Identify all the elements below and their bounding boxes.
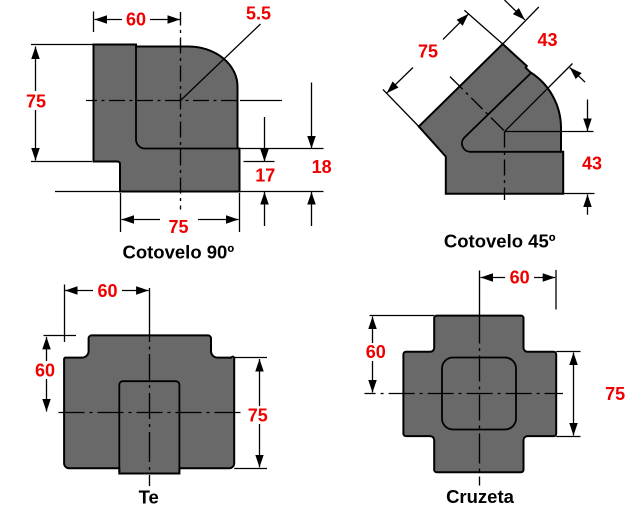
svg-text:Cruzeta: Cruzeta (446, 486, 515, 507)
svg-text:43: 43 (582, 154, 602, 174)
svg-text:60: 60 (126, 9, 146, 29)
svg-text:75: 75 (248, 405, 268, 425)
svg-text:60: 60 (97, 281, 117, 301)
svg-text:75: 75 (605, 384, 625, 404)
svg-text:18: 18 (312, 157, 332, 177)
svg-text:75: 75 (418, 42, 438, 62)
svg-text:43: 43 (537, 30, 557, 50)
svg-text:Te: Te (139, 487, 159, 508)
svg-text:17: 17 (255, 166, 275, 186)
svg-text:75: 75 (26, 91, 46, 111)
svg-text:75: 75 (168, 217, 188, 237)
svg-text:Cotovelo 90º: Cotovelo 90º (122, 242, 234, 263)
svg-text:60: 60 (366, 342, 386, 362)
svg-text:5.5: 5.5 (246, 4, 271, 24)
svg-text:Cotovelo 45º: Cotovelo 45º (444, 231, 556, 252)
svg-text:60: 60 (35, 360, 55, 380)
svg-text:60: 60 (510, 267, 530, 287)
